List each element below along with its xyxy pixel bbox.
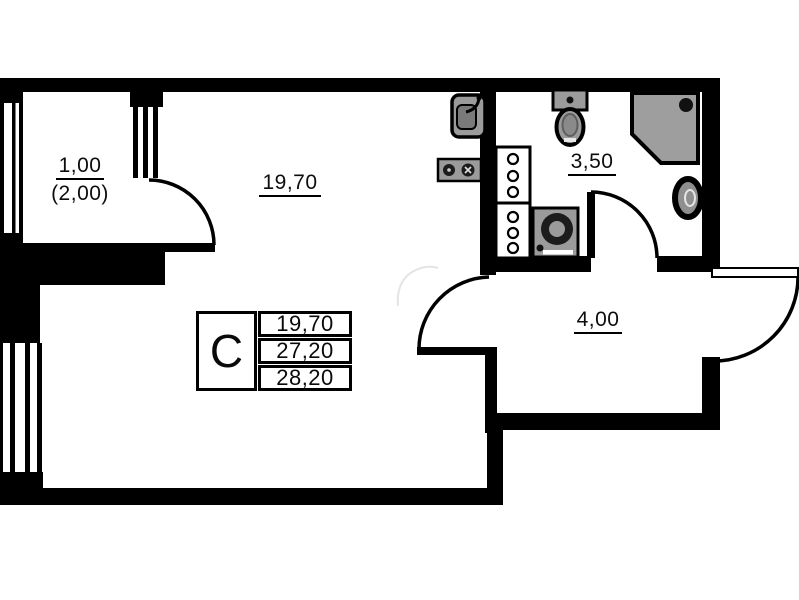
ventilation-shaft <box>496 203 530 258</box>
wall-segment <box>23 243 215 252</box>
stamp-area-without-balcony: 27,20 <box>258 338 352 364</box>
stamp-total-area: 28,20 <box>258 365 352 391</box>
wall-segment <box>130 92 163 107</box>
wall-segment <box>0 488 503 505</box>
living-room-area-value: 19,70 <box>259 172 320 197</box>
shower-icon <box>632 93 698 163</box>
bathroom-area-value: 3,50 <box>568 151 617 176</box>
stamp-living-area: 19,70 <box>258 311 352 337</box>
unit-stamp: C 19,70 27,20 28,20 <box>196 311 352 392</box>
entrance-door-leaf <box>712 268 798 277</box>
cooktop-icon <box>438 159 481 181</box>
door-swing-arc <box>419 277 489 349</box>
balcony-area-label: 1,00 <box>38 155 122 180</box>
washbasin-icon <box>675 179 701 217</box>
bathroom-area-label: 3,50 <box>560 151 624 176</box>
door-swing-arc <box>714 277 798 361</box>
wall-segment <box>702 78 720 272</box>
window-glazing <box>10 343 15 472</box>
kitchen-sink-icon <box>452 95 485 137</box>
window-glazing <box>25 343 30 472</box>
washing-machine-icon <box>533 208 578 257</box>
window-glazing <box>12 103 16 233</box>
door-leaf <box>417 347 492 355</box>
wall-segment <box>0 90 23 103</box>
window-glazing <box>133 107 138 178</box>
toilet-icon <box>553 90 587 145</box>
balcony-area-value: 1,00 <box>56 155 105 180</box>
wall-segment <box>0 252 165 285</box>
wall-segment <box>0 78 716 92</box>
window-glazing <box>37 343 42 472</box>
unit-type-letter: C <box>196 311 257 391</box>
door-swing-arc <box>591 192 657 258</box>
wall-segment <box>657 256 702 272</box>
window-glazing <box>0 103 4 233</box>
floor-plan: 1,00 (2,00) 19,70 3,50 4,00 C 19,70 27,2… <box>0 0 799 600</box>
window-glazing <box>143 107 148 178</box>
floor-plan-drawing <box>0 0 799 600</box>
wall-segment <box>485 413 720 430</box>
wall-segment <box>0 472 43 490</box>
walls <box>0 78 720 505</box>
wall-segment <box>702 357 720 413</box>
balcony-reduced-area-value: (2,00) <box>51 182 109 205</box>
wall-segment <box>0 283 40 343</box>
door-leaf <box>587 192 595 258</box>
window-glazing <box>153 107 158 178</box>
balcony-reduced-area-label: (2,00) <box>28 183 132 205</box>
wall-segment <box>0 233 23 252</box>
hallway-area-value: 4,00 <box>574 309 623 334</box>
window-glazing <box>19 103 23 233</box>
hallway-area-label: 4,00 <box>566 309 630 334</box>
watermark <box>398 267 438 306</box>
ventilation-shaft <box>496 147 530 203</box>
window-glazing <box>0 343 3 472</box>
living-room-area-label: 19,70 <box>250 172 330 197</box>
wall-segment <box>487 430 503 488</box>
door-swing-arc <box>149 180 214 245</box>
